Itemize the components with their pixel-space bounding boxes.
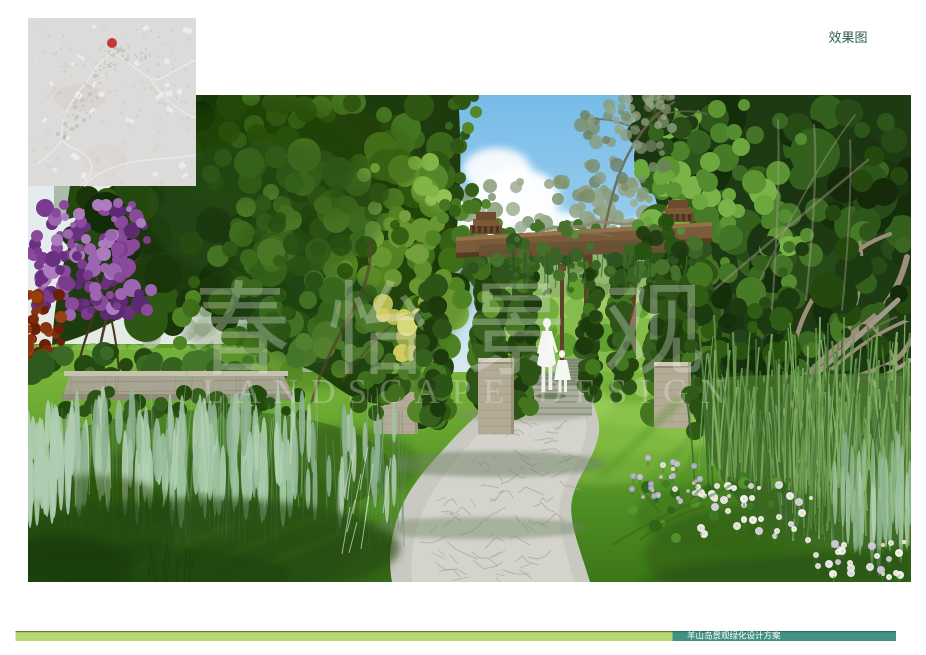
svg-text:效果图: 效果图 — [828, 30, 867, 45]
svg-text:羊山岛景观绿化设计方案: 羊山岛景观绿化设计方案 — [687, 631, 781, 641]
svg-text:LANDSCAPE DESIGN: LANDSCAPE DESIGN — [202, 372, 737, 411]
